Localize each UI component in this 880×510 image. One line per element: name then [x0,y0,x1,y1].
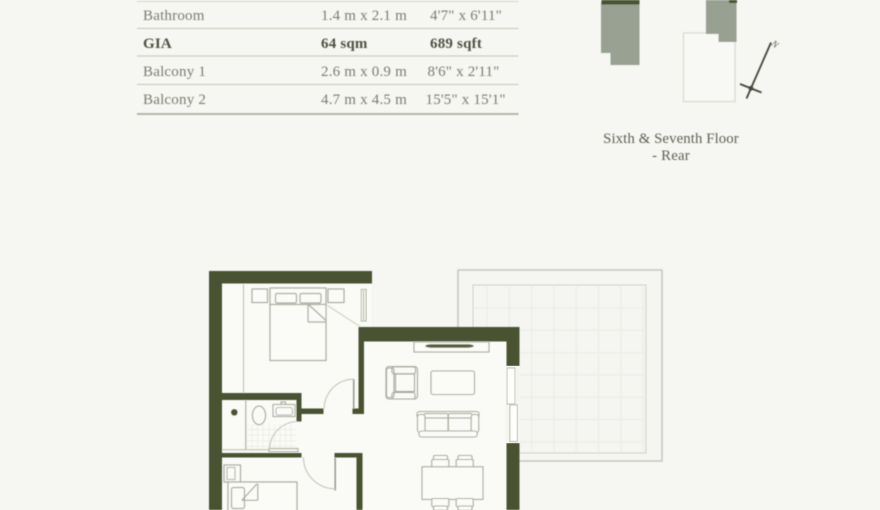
svg-text:4.7 m x 4.5 m: 4.7 m x 4.5 m [321,92,407,108]
svg-text:Balcony 1: Balcony 1 [143,64,206,80]
svg-text:Bathroom: Bathroom [143,8,205,24]
svg-text:15'5" x 15'1": 15'5" x 15'1" [426,92,506,108]
svg-text:1.4 m x 2.1 m: 1.4 m x 2.1 m [321,8,407,24]
svg-text:GIA: GIA [143,36,172,52]
svg-text:689 sqft: 689 sqft [430,36,482,52]
svg-text:64 sqm: 64 sqm [321,36,368,52]
svg-text:Sixth & Seventh Floor: Sixth & Seventh Floor [603,131,739,147]
svg-text:- Rear: - Rear [652,148,690,164]
svg-text:8'6" x 2'11": 8'6" x 2'11" [428,64,500,80]
svg-text:4'7" x 6'11": 4'7" x 6'11" [430,8,502,24]
svg-text:Balcony 2: Balcony 2 [143,92,206,108]
svg-text:2.6 m x 0.9 m: 2.6 m x 0.9 m [321,64,407,80]
